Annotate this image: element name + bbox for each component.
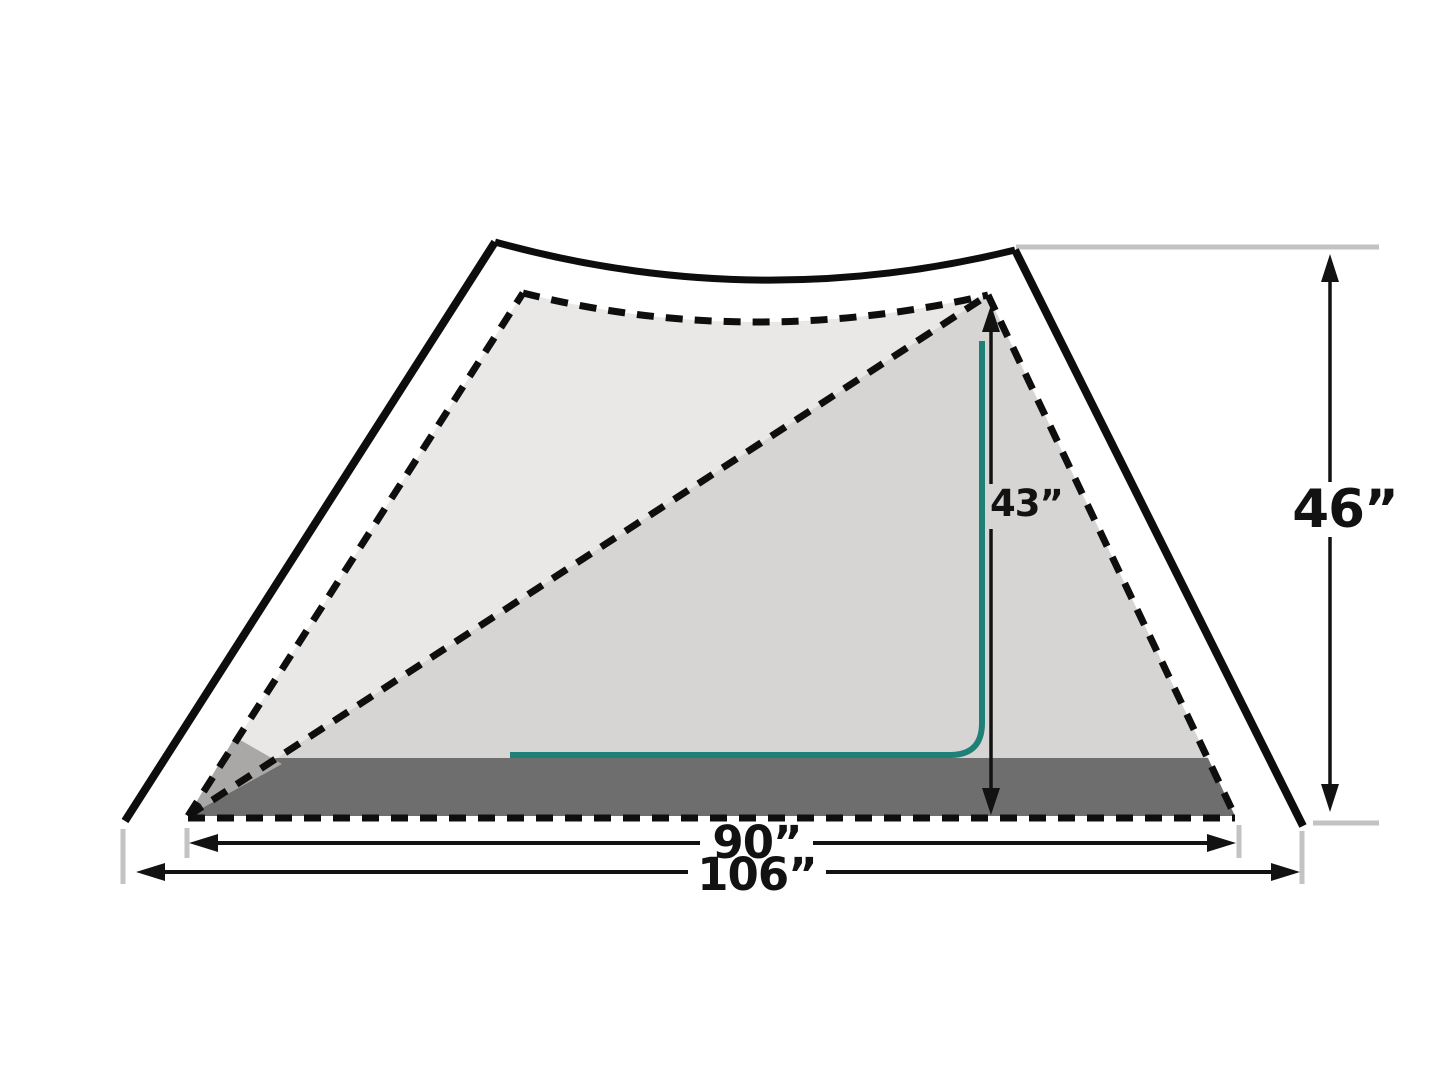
overall-length-label: 106”: [697, 848, 817, 901]
tent-floor: [188, 758, 1235, 816]
arrowhead-right-icon: [1207, 834, 1236, 852]
diagram-canvas: 43” 46” 90” 106”: [0, 0, 1445, 1084]
measure-peak-height: 46”: [1292, 254, 1398, 812]
peak-height-label: 46”: [1292, 479, 1398, 540]
arrowhead-down-icon: [1321, 784, 1339, 812]
arrowhead-left-icon: [189, 834, 218, 852]
arrowhead-right-icon: [1271, 863, 1300, 881]
measure-overall-length: 106”: [136, 848, 1300, 901]
arrowhead-up-icon: [1321, 254, 1339, 282]
tent-dimension-diagram: 43” 46” 90” 106”: [0, 0, 1445, 1084]
fly-ridge: [495, 242, 1015, 280]
arrowhead-left-icon: [136, 863, 165, 881]
interior-height-label: 43”: [990, 482, 1063, 525]
